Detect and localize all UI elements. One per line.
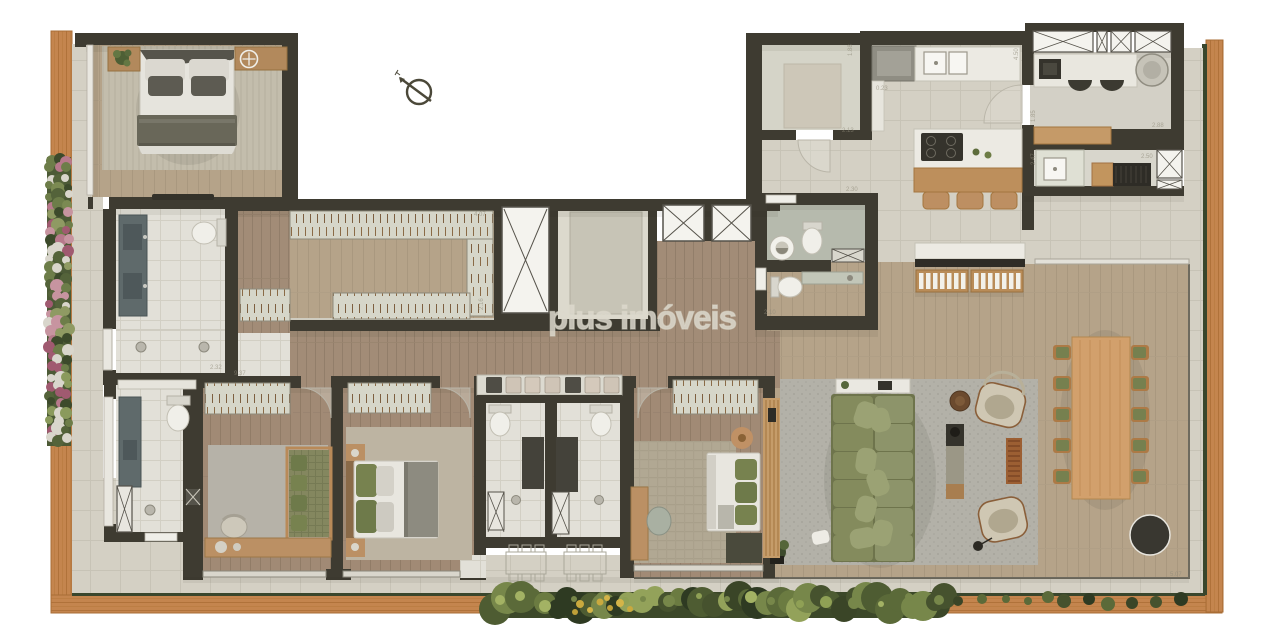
svg-text:2.10: 2.10 <box>764 310 776 316</box>
svg-text:2.88: 2.88 <box>1152 123 1164 129</box>
svg-text:plus imóveis: plus imóveis <box>548 299 736 336</box>
svg-text:2.32: 2.32 <box>210 365 222 371</box>
svg-text:4.50: 4.50 <box>1014 48 1020 60</box>
svg-text:1.85: 1.85 <box>1031 110 1037 122</box>
svg-text:0.23: 0.23 <box>876 86 888 92</box>
svg-text:5.07: 5.07 <box>1170 572 1182 578</box>
svg-text:2.47: 2.47 <box>1031 153 1037 165</box>
svg-text:2.13: 2.13 <box>842 128 854 134</box>
svg-text:1.88: 1.88 <box>848 44 854 56</box>
svg-text:4.07: 4.07 <box>474 212 486 218</box>
svg-text:2.50: 2.50 <box>1141 154 1153 160</box>
svg-text:9.37: 9.37 <box>234 371 246 377</box>
svg-text:2.30: 2.30 <box>846 187 858 193</box>
svg-text:2.16: 2.16 <box>479 298 485 310</box>
